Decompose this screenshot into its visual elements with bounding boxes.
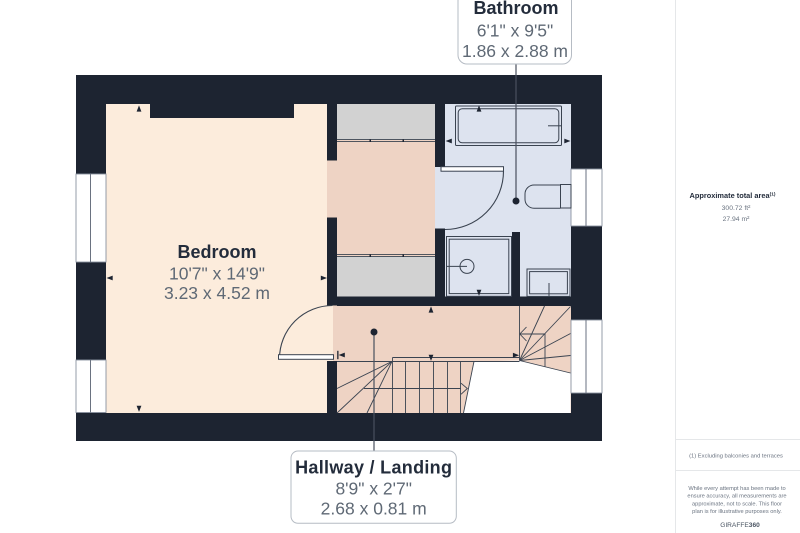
svg-text:Hallway / Landing: Hallway / Landing bbox=[295, 457, 452, 477]
svg-text:1.86 x 2.88 m: 1.86 x 2.88 m bbox=[462, 41, 568, 61]
svg-text:ensure accuracy, all measureme: ensure accuracy, all measurements are bbox=[687, 494, 786, 500]
svg-text:2.68 x 0.81 m: 2.68 x 0.81 m bbox=[321, 499, 427, 519]
svg-text:approximate, not to scale. Thi: approximate, not to scale. This floor bbox=[692, 501, 782, 507]
svg-text:27.94 m²: 27.94 m² bbox=[723, 216, 751, 223]
svg-text:While every attempt has been m: While every attempt has been made to bbox=[688, 486, 785, 492]
svg-text:Bathroom: Bathroom bbox=[474, 0, 559, 18]
svg-text:(1) Excluding balconies and te: (1) Excluding balconies and terraces bbox=[689, 454, 783, 460]
svg-text:plan is for illustrative purpo: plan is for illustrative purposes only. bbox=[692, 509, 782, 515]
svg-text:10'7" x 14'9": 10'7" x 14'9" bbox=[169, 264, 265, 284]
svg-text:8'9" x 2'7": 8'9" x 2'7" bbox=[335, 479, 412, 499]
svg-text:300.72 ft²: 300.72 ft² bbox=[722, 205, 751, 212]
svg-text:6'1" x 9'5": 6'1" x 9'5" bbox=[477, 21, 554, 41]
svg-text:3.23 x 4.52 m: 3.23 x 4.52 m bbox=[164, 283, 270, 303]
svg-text:Bedroom: Bedroom bbox=[177, 242, 256, 262]
svg-text:Approximate total area(1): Approximate total area(1) bbox=[690, 191, 776, 200]
svg-text:GIRAFFE360: GIRAFFE360 bbox=[720, 522, 760, 529]
